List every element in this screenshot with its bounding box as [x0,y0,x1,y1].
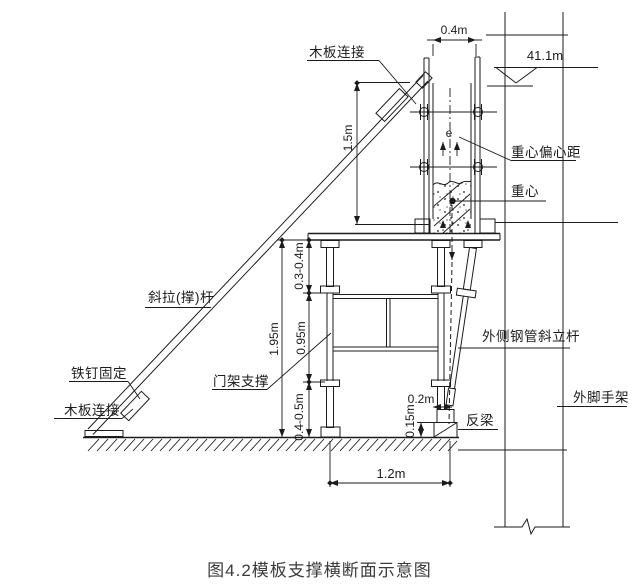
figure-4-2: 41.1m [0,0,639,584]
svg-text:木板连接: 木板连接 [309,44,365,60]
dim-formwork-height: 1.5m [341,125,355,152]
jack-right [432,241,451,294]
callout-outer-diagonal-pipe: 外侧钢管斜立杆 [482,329,580,344]
svg-text:重心偏心距: 重心偏心距 [511,145,581,160]
bearing-pad-left [415,219,430,233]
brace-base-plate [85,431,123,437]
callout-diagonal-brace: 斜拉(撑)杆 [145,290,214,308]
callout-inverted-beam: 反梁 [458,413,498,430]
svg-text:门架支撑: 门架支撑 [213,374,269,389]
frame-base-left [321,427,340,437]
door-frame [321,293,451,437]
dim-top-width: 0.4m [441,23,468,37]
inverted-beam-assembly [434,410,457,438]
dim-jack-offset: 0.2m [408,392,435,406]
dim-e: e [446,126,453,140]
jack-left [321,241,340,294]
dim-total-height: 1.95m [267,322,281,355]
dim-platform-gap: 0.3-0.4m [292,242,306,289]
svg-text:木板连接: 木板连接 [64,402,120,418]
svg-text:外脚手架: 外脚手架 [573,390,629,405]
outer-diagonal-pipe [440,241,482,407]
callout-board-connection-top: 木板连接 [307,44,416,104]
callouts: 木板连接 重心偏心距 重心 斜拉(撑)杆 铁钉固定 木板连接 门架支撑 外侧钢管… [54,44,629,430]
svg-text:反梁: 反梁 [466,413,494,428]
form-tie-upper [410,104,497,120]
dim-beam-height: 0.15m [403,404,417,437]
form-tie-lower [410,159,497,175]
callout-outer-scaffold: 外脚手架 [557,390,629,407]
jack-base-plate [437,410,454,423]
dim-frame-height: 0.95m [294,321,308,354]
dim-bottom-width: 1.2m [377,466,406,481]
svg-text:重心: 重心 [511,184,539,199]
diagram-canvas: 41.1m [0,0,639,556]
figure-caption: 图4.2模板支撑横断面示意图 [0,556,639,581]
callout-nail-fixing: 铁钉固定 [69,366,140,399]
svg-text:斜拉(撑)杆: 斜拉(撑)杆 [148,290,214,305]
svg-text:铁钉固定: 铁钉固定 [71,366,127,381]
svg-text:外侧钢管斜立杆: 外侧钢管斜立杆 [482,329,580,344]
level-mark: 41.1m [487,48,598,86]
outer-scaffold [458,12,618,534]
bearing-pad-right [480,219,495,233]
elevation-value: 41.1m [527,48,563,63]
dim-base-height: 0.4-0.5m [292,393,306,440]
ground [83,438,459,452]
